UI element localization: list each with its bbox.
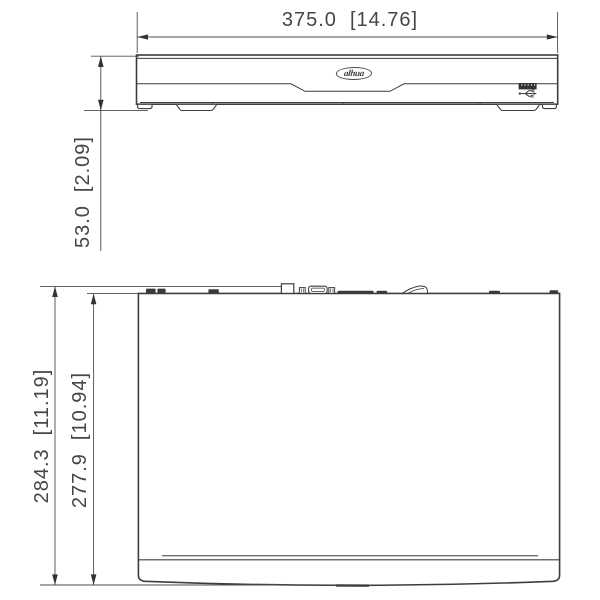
rear-connector-8 — [489, 291, 500, 293]
rear-connector-5 — [329, 288, 335, 294]
rear-connector-4 — [299, 288, 305, 294]
arrowhead-up — [52, 286, 58, 297]
arrowhead-down — [98, 100, 104, 111]
front-foot-stub-left — [138, 105, 152, 109]
dim-top-depth-body — [87, 294, 139, 585]
top-view — [138, 284, 559, 586]
front-width-mm: 375.0 — [282, 9, 337, 32]
top-depth-overall-inch: [11.19] — [31, 369, 54, 436]
rear-connector-3 — [208, 289, 218, 293]
arrowhead-up — [98, 56, 104, 67]
front-foot-stub-right — [543, 105, 557, 109]
arrowhead-down — [52, 574, 58, 585]
front-feet — [138, 105, 557, 111]
usb-port — [519, 83, 537, 89]
front-panel-outline — [137, 55, 558, 104]
arrowhead-left — [137, 34, 148, 39]
arrowhead-up — [91, 294, 97, 305]
front-width-label: 375.0 [14.76] — [272, 10, 428, 30]
front-height-mm: 53.0 — [72, 205, 95, 248]
front-foot-right — [497, 105, 540, 111]
drawing-linework — [0, 0, 600, 600]
top-depth-overall-mm: 284.3 — [31, 448, 54, 503]
front-height-label: 53.0 [2.09] — [73, 122, 93, 262]
rear-connector-7 — [377, 291, 388, 294]
rear-connector-1 — [146, 289, 156, 294]
front-height-inch: [2.09] — [72, 136, 95, 192]
front-view — [137, 55, 558, 111]
rear-connector-2 — [157, 289, 165, 294]
power-socket — [281, 284, 293, 294]
rear-connector-6 — [338, 291, 374, 294]
top-depth-body-label: 277.9 [10.94] — [70, 363, 90, 517]
top-depth-overall-label: 284.3 [11.19] — [32, 359, 52, 513]
front-width-inch: [14.76] — [350, 9, 418, 32]
rear-connectors — [146, 284, 558, 294]
dimension-drawing-canvas: 375.0 [14.76] 53.0 [2.09] 284.3 [11.19] … — [0, 0, 600, 600]
rear-connector-9 — [550, 290, 559, 293]
arrowhead-down — [91, 574, 97, 585]
top-view-outline — [138, 293, 559, 585]
vga-port — [309, 286, 328, 293]
front-foot-left — [177, 105, 217, 111]
top-depth-body-mm: 277.9 — [69, 453, 92, 508]
dahua-logo: alhua — [335, 67, 372, 80]
arrowhead-right — [547, 34, 558, 39]
top-depth-body-inch: [10.94] — [69, 372, 92, 440]
ground-clip — [403, 286, 428, 293]
